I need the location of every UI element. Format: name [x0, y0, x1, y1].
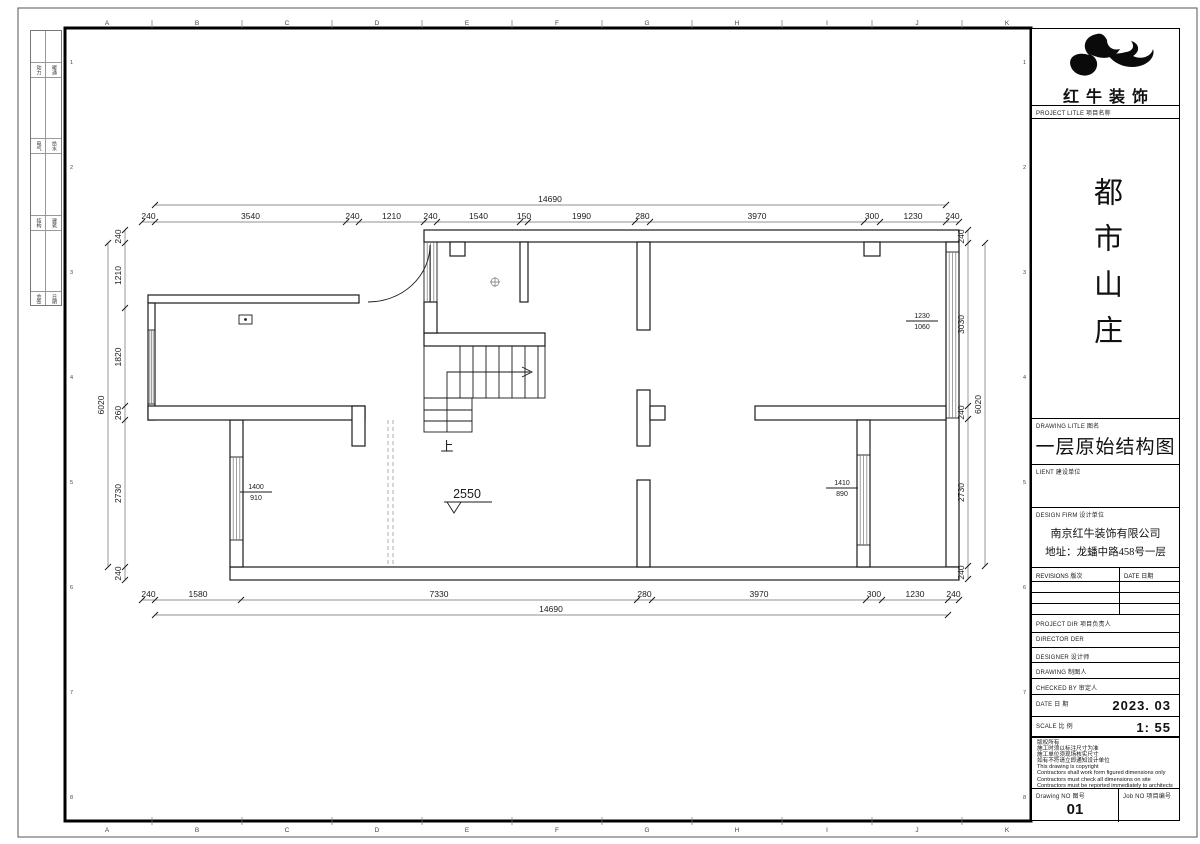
- project-title-label: PROJECT LITLE 项目名称: [1032, 106, 1179, 117]
- grid-number: 5: [70, 480, 73, 486]
- signature-cell: 建筑: [51, 218, 56, 228]
- dim: 3970: [750, 589, 769, 599]
- copyright-notes: 版权所有 施工时须以标注尺寸为准 施工单位须现场核实尺寸 如有不符请立即通知设计…: [1032, 737, 1179, 789]
- grid-number: 7: [1023, 690, 1026, 696]
- dim: 1210: [382, 211, 401, 221]
- grid-letter: B: [195, 20, 199, 27]
- dim: 300: [867, 589, 881, 599]
- window-entry: [424, 242, 437, 302]
- dim: 240: [141, 211, 155, 221]
- win-size: 1060: [914, 324, 930, 331]
- dim-overall: 14690: [538, 194, 562, 204]
- grid-number: 5: [1023, 480, 1026, 486]
- signature-cell: 结构: [36, 218, 41, 228]
- dim: 2730: [956, 483, 966, 502]
- drawing-no-value: 01: [1032, 801, 1118, 818]
- grid-number: 7: [70, 690, 73, 696]
- dim: 1210: [113, 266, 123, 285]
- grid-letter: E: [465, 827, 470, 834]
- grid-letter: C: [285, 20, 290, 27]
- grid-letter: A: [105, 20, 110, 27]
- grid-number: 6: [70, 585, 73, 591]
- dim: 300: [865, 211, 879, 221]
- dim: 7330: [430, 589, 449, 599]
- dim: 240: [345, 211, 359, 221]
- grid-number: 1: [1023, 60, 1026, 66]
- drain-symbol: [490, 277, 500, 287]
- grid-letter: D: [375, 827, 380, 834]
- rev-date-label: DATE 日期: [1119, 568, 1179, 581]
- grid-numbers: 1 2 3 4 5 6 7 8 1 2 3 4 5 6 7 8: [70, 60, 1026, 801]
- dim: 240: [946, 589, 960, 599]
- signature-strip: 动力 暖通 电气 给水 结构 建筑 会签 日期: [30, 30, 62, 306]
- grid-letter: F: [555, 20, 559, 27]
- dim: 240: [956, 229, 966, 243]
- grid-letter: G: [644, 20, 649, 27]
- grid-letter: J: [915, 827, 918, 834]
- director-label: DIRECTOR DER: [1032, 635, 1084, 643]
- grid-letter: D: [375, 20, 380, 27]
- grid-number: 3: [1023, 270, 1026, 276]
- designer-label: DESIGNER 设计师: [1032, 650, 1089, 661]
- dim: 280: [637, 589, 651, 599]
- grid-letter: F: [555, 827, 559, 834]
- dim: 240: [956, 405, 966, 419]
- dim: 280: [635, 211, 649, 221]
- grid-number: 8: [70, 795, 73, 801]
- grid-number: 4: [70, 375, 73, 381]
- project-name: 都市山庄: [1085, 177, 1127, 361]
- grid-letter: H: [735, 20, 740, 27]
- dim: 240: [956, 565, 966, 579]
- date-label: DATE 日 期: [1032, 697, 1069, 708]
- dim: 2730: [113, 484, 123, 503]
- grid-letter: K: [1005, 827, 1010, 834]
- win-size: 1230: [914, 313, 930, 320]
- dim: 3970: [748, 211, 767, 221]
- scale-label: SCALE 比 例: [1032, 719, 1073, 730]
- dim: 240: [423, 211, 437, 221]
- drawing-name: 一层原始结构图: [1032, 433, 1179, 465]
- win-size: 1410: [834, 480, 850, 487]
- grid-letter: H: [735, 827, 740, 834]
- design-firm-label: DESIGN FIRM 设计单位: [1032, 508, 1179, 519]
- entry-door: [368, 245, 430, 302]
- grid-number: 1: [70, 60, 73, 66]
- signature-cell: 电气: [36, 141, 41, 151]
- project-dir-label: PROJECT DIR 项目负责人: [1032, 617, 1111, 628]
- drawing-by-label: DRAWING 制图人: [1032, 665, 1087, 676]
- staircase: 上: [424, 346, 545, 454]
- drawing-frame: [65, 28, 1031, 821]
- dim: 1230: [906, 589, 925, 599]
- win-size: 890: [836, 491, 848, 498]
- grid-letter: J: [915, 20, 918, 27]
- floor-line: [388, 420, 393, 567]
- dim-overall: 6020: [973, 395, 983, 414]
- dim: 1230: [904, 211, 923, 221]
- dim: 1580: [189, 589, 208, 599]
- grid-letter: A: [105, 827, 110, 834]
- floor-plan: 上 2550 1230 1060 1400 910 1410: [148, 230, 959, 580]
- dim: 1820: [113, 347, 123, 366]
- level-value: 2550: [453, 487, 481, 501]
- floor-plan-canvas: A B C D E F G H I J K A B C D E F G H I …: [0, 0, 1200, 844]
- note-line: Contractors shall work form figured dime…: [1037, 770, 1179, 776]
- dim: 260: [113, 406, 123, 420]
- signature-cell: 动力: [36, 65, 41, 75]
- dimensions-right: 240 3030 240 2730 240 6020: [956, 227, 988, 582]
- redbull-logo-icon: [1051, 31, 1161, 83]
- scale-value: 1: 55: [1136, 720, 1171, 735]
- dimensions-bottom: 240 1580 7330 280 3970 300 1230 240 1469…: [139, 589, 962, 618]
- dim: 150: [517, 211, 531, 221]
- walls: [148, 230, 959, 580]
- grid-letter: I: [826, 827, 828, 834]
- dimensions-top: 240 3540 240 1210 240 1540 150 1990 280 …: [139, 194, 962, 225]
- dim: 240: [141, 589, 155, 599]
- signature-cell: 会签: [36, 294, 41, 304]
- grid-number: 6: [1023, 585, 1026, 591]
- grid-number: 4: [1023, 375, 1026, 381]
- signature-cell: 暖通: [51, 65, 56, 75]
- checked-by-label: CHECKED BY 审定人: [1032, 681, 1097, 692]
- grid-letter: I: [826, 20, 828, 27]
- dim: 3540: [241, 211, 260, 221]
- signature-cell: 给水: [51, 141, 56, 151]
- drawing-title-label: DRAWING LITLE 图名: [1032, 419, 1179, 430]
- dimensions-left: 240 1210 1820 260 2730 240 6020: [96, 227, 128, 583]
- dim: 1990: [572, 211, 591, 221]
- drawing-no-label: Drawing NO 图号: [1032, 789, 1118, 800]
- grid-letter: E: [465, 20, 470, 27]
- design-firm-address: 地址：龙蟠中路458号一层: [1032, 544, 1179, 559]
- win-size: 910: [250, 495, 262, 502]
- design-firm-section: DESIGN FIRM 设计单位 南京红牛装饰有限公司 地址：龙蟠中路458号一…: [1032, 508, 1179, 568]
- revisions-table: REVISIONS 版次 DATE 日期: [1032, 568, 1179, 615]
- note-line: Contractors must be reported immediately…: [1037, 783, 1179, 789]
- grid-number: 8: [1023, 795, 1026, 801]
- grid-number: 3: [70, 270, 73, 276]
- title-block: 红牛装饰 PROJECT LITLE 项目名称 都市山庄 DRAWING LIT…: [1031, 28, 1180, 821]
- signature-cell: 日期: [51, 294, 56, 304]
- client-label: LIENT 建设单位: [1032, 465, 1179, 476]
- flue-symbol: [239, 315, 252, 324]
- brand-name: 红牛装饰: [1032, 83, 1179, 106]
- dim: 1540: [469, 211, 488, 221]
- date-value: 2023. 03: [1112, 698, 1171, 713]
- stair-up-label: 上: [440, 439, 453, 454]
- brand-section: 红牛装饰: [1032, 29, 1179, 106]
- grid-number: 2: [1023, 165, 1026, 171]
- dim-overall: 14690: [539, 604, 563, 614]
- drawing-number-section: Drawing NO 图号 01 Job NO 项目编号: [1032, 789, 1179, 822]
- win-size: 1400: [248, 484, 264, 491]
- grid-number: 2: [70, 165, 73, 171]
- dim: 3030: [956, 315, 966, 334]
- level-mark: 2550: [444, 487, 492, 513]
- outer-border: [18, 8, 1197, 837]
- grid-letter: B: [195, 827, 199, 834]
- drawing-sheet: A B C D E F G H I J K A B C D E F G H I …: [0, 0, 1200, 844]
- revisions-label: REVISIONS 版次: [1032, 568, 1119, 581]
- grid-letter: C: [285, 827, 290, 834]
- design-firm-name: 南京红牛装饰有限公司: [1032, 525, 1179, 541]
- windows: [148, 242, 959, 545]
- grid-letter: G: [644, 827, 649, 834]
- dim: 240: [945, 211, 959, 221]
- grid-letter: K: [1005, 20, 1010, 27]
- dim: 240: [113, 566, 123, 580]
- dim-overall: 6020: [96, 395, 106, 414]
- dim: 240: [113, 229, 123, 243]
- job-no-label: Job NO 项目编号: [1119, 789, 1179, 800]
